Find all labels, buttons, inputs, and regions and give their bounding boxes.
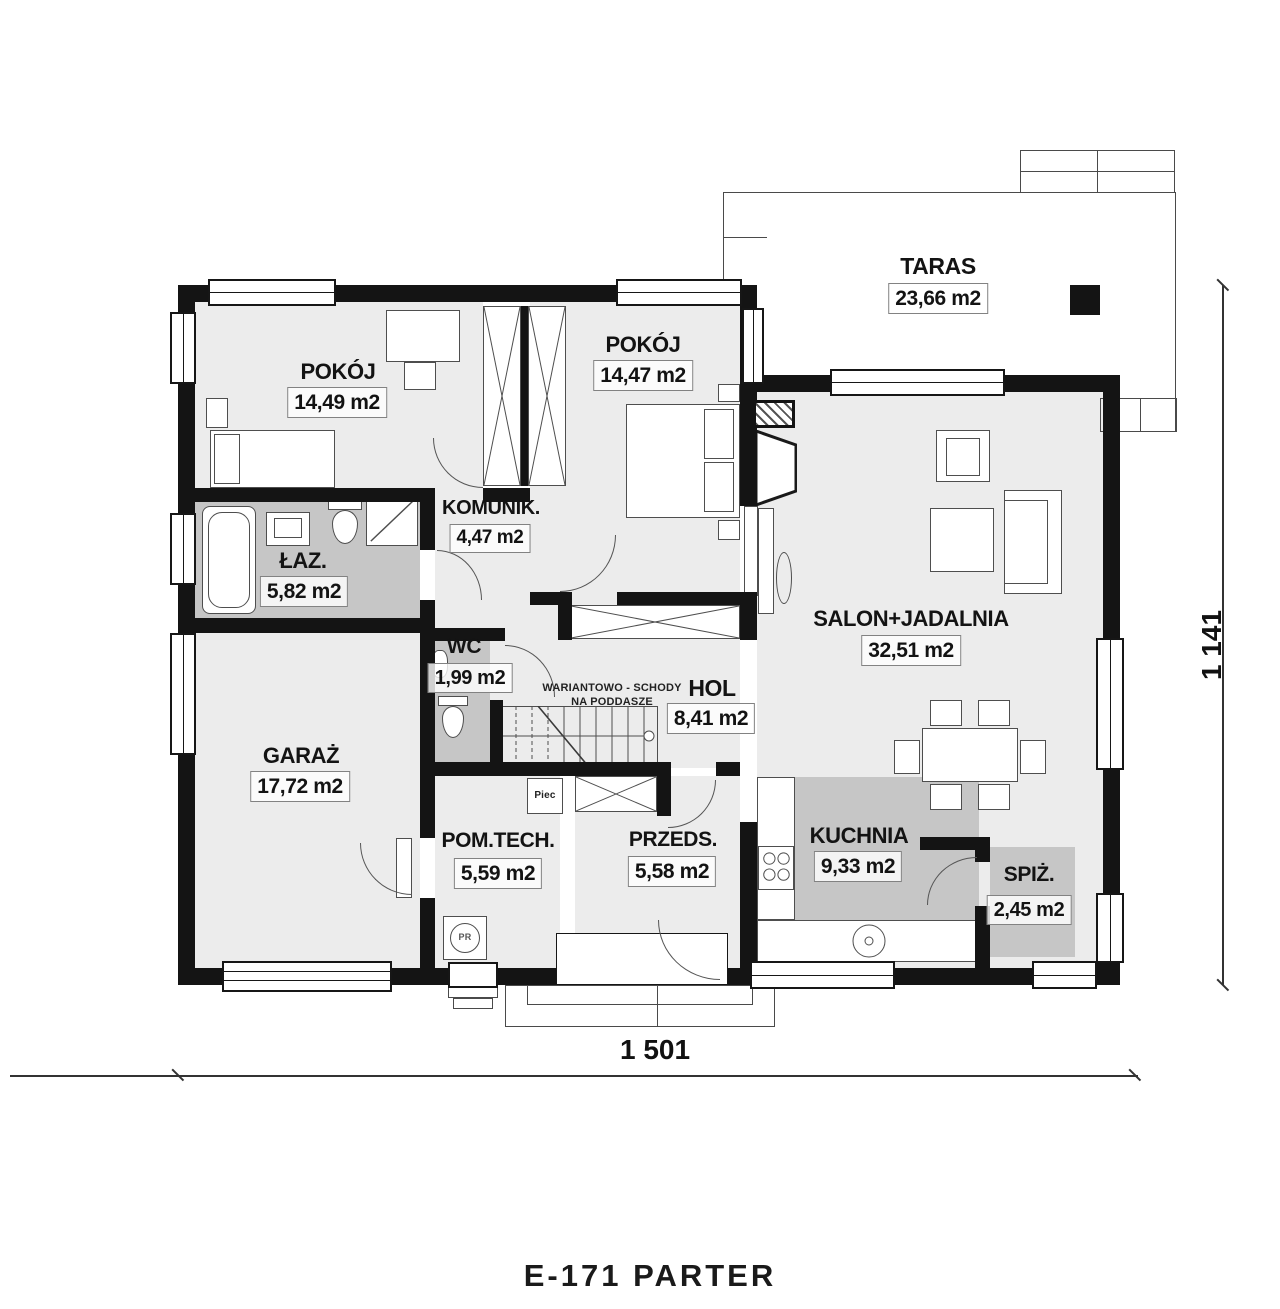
wall-przeds-north-stub <box>716 762 740 776</box>
taras-outline-left <box>723 192 724 287</box>
room-label-komunik: KOMUNIK. <box>442 498 540 519</box>
stove <box>758 846 794 890</box>
wardrobe <box>483 306 521 486</box>
bed-pillow <box>704 409 734 459</box>
window-pokoj1-west <box>170 312 196 384</box>
wall-center-vert <box>420 488 435 550</box>
light-partition <box>744 506 758 596</box>
plan-title: E-171 PARTER <box>400 1258 900 1294</box>
taras-outline-right <box>1175 192 1176 432</box>
garage-gate[interactable] <box>222 961 392 992</box>
fireplace <box>755 430 797 506</box>
wall-przeds-kuchnia <box>740 822 757 968</box>
entrance-porch-inner <box>527 985 753 1005</box>
room-label-taras: TARAS <box>900 254 976 278</box>
tv-unit <box>758 508 774 614</box>
stairs <box>500 706 658 766</box>
wall-wc-east <box>490 700 503 764</box>
dining-chair <box>894 740 920 774</box>
wardrobe <box>528 306 566 486</box>
window-laz-west <box>170 513 196 585</box>
wall-pomtech-north <box>420 762 660 776</box>
desk-chair <box>404 362 436 390</box>
roof-detail-line-v <box>1097 150 1098 193</box>
pomtech-exterior-door[interactable] <box>448 962 498 988</box>
pomtech-step <box>453 998 493 1009</box>
coffee-table <box>930 508 994 572</box>
room-area-spiz: 2,45 m2 <box>987 895 1072 925</box>
stairs-note-line1: WARIANTOWO - SCHODY <box>542 682 681 694</box>
room-area-komunik: 4,47 m2 <box>450 524 531 553</box>
wall-wardrobe-stub <box>521 306 528 486</box>
chimney <box>753 400 795 428</box>
hol-wardrobe <box>570 605 740 639</box>
window-garaz-west <box>170 633 196 755</box>
room-area-salon: 32,51 m2 <box>861 635 961 666</box>
wall-south <box>178 968 225 985</box>
dining-chair <box>978 784 1010 810</box>
wall-laz-north <box>195 488 420 502</box>
room-area-pomtech: 5,59 m2 <box>454 858 542 889</box>
wall-corner-se <box>1095 961 1120 985</box>
room-area-pokoj1: 14,49 m2 <box>287 387 387 418</box>
wall-south <box>498 968 560 985</box>
bathtub-inner <box>208 512 250 608</box>
wall-laz-south <box>178 618 425 633</box>
dining-table <box>922 728 1018 782</box>
dimension-height: 1 141 <box>1196 610 1228 680</box>
wall-salon-west-stub <box>740 592 757 640</box>
window-salon-north <box>830 369 1005 396</box>
floor-plan: Piec PR <box>0 0 1280 1309</box>
room-label-pokoj1: POKÓJ <box>300 360 375 383</box>
furnace-label: Piec <box>534 790 555 801</box>
room-area-garaz: 17,72 m2 <box>250 771 350 802</box>
room-label-przeds: PRZEDS. <box>629 829 717 851</box>
shower <box>366 496 418 546</box>
pr-label: PR <box>459 932 472 942</box>
room-area-taras: 23,66 m2 <box>888 283 988 314</box>
room-label-wc: WC <box>447 636 481 658</box>
wall-garage-east <box>420 898 435 968</box>
room-area-pokoj2: 14,47 m2 <box>593 360 693 391</box>
bed-pillow <box>214 434 240 484</box>
desk <box>386 310 460 362</box>
armchair-cushion <box>946 438 980 476</box>
wall-south <box>392 968 450 985</box>
window-salon-east-low <box>1096 893 1124 963</box>
window-pokoj1-north <box>208 279 336 306</box>
window-pokoj2-east <box>742 308 764 384</box>
room-area-przeds: 5,58 m2 <box>628 856 716 887</box>
wc-toilet-tank <box>438 696 468 706</box>
entrance-porch-line <box>657 985 658 1027</box>
wall-pokoj2-south <box>617 592 740 605</box>
room-label-kuchnia: KUCHNIA <box>810 824 909 847</box>
room-area-hol: 8,41 m2 <box>667 703 755 734</box>
dimension-width: 1 501 <box>620 1034 690 1066</box>
kitchen-sink <box>850 922 888 960</box>
wall-south <box>725 968 752 985</box>
room-area-wc: 1,99 m2 <box>428 663 513 693</box>
room-label-hol: HOL <box>688 676 735 700</box>
room-label-pokoj2: POKÓJ <box>605 333 680 356</box>
dining-chair <box>978 700 1010 726</box>
roof-detail-line-v2 <box>1140 398 1141 432</box>
nightstand <box>206 398 228 428</box>
room-label-garaz: GARAŻ <box>263 744 339 767</box>
room-label-laz: ŁAZ. <box>279 549 326 572</box>
room-area-laz: 5,82 m2 <box>260 576 348 607</box>
dining-chair <box>1020 740 1046 774</box>
wall-holwardrobe-stub <box>558 592 572 640</box>
bed-pillow <box>704 462 734 512</box>
dining-chair <box>930 784 962 810</box>
nightstand <box>718 520 740 540</box>
room-label-salon: SALON+JADALNIA <box>813 607 1008 630</box>
dining-chair <box>930 700 962 726</box>
window-pokoj2-north <box>616 279 742 306</box>
window-corner-south <box>1032 961 1097 989</box>
stairs-note-line2: NA PODDASZE <box>571 696 653 708</box>
window-salon-east <box>1096 638 1124 770</box>
wall-south <box>893 968 1033 985</box>
wall-spiz-west <box>975 847 990 862</box>
window-kuchnia-south <box>750 961 895 989</box>
pomtech-wardrobe <box>575 776 657 812</box>
nightstand <box>718 384 740 402</box>
sofa-seat <box>1004 500 1048 584</box>
taras-step-line <box>723 237 767 238</box>
room-area-kuchnia: 9,33 m2 <box>814 851 902 882</box>
room-label-pomtech: POM.TECH. <box>441 830 554 852</box>
plant <box>776 552 792 604</box>
taras-pillar <box>1070 285 1100 315</box>
washbasin <box>274 518 302 538</box>
room-label-spiz: SPIŻ. <box>1004 864 1055 886</box>
